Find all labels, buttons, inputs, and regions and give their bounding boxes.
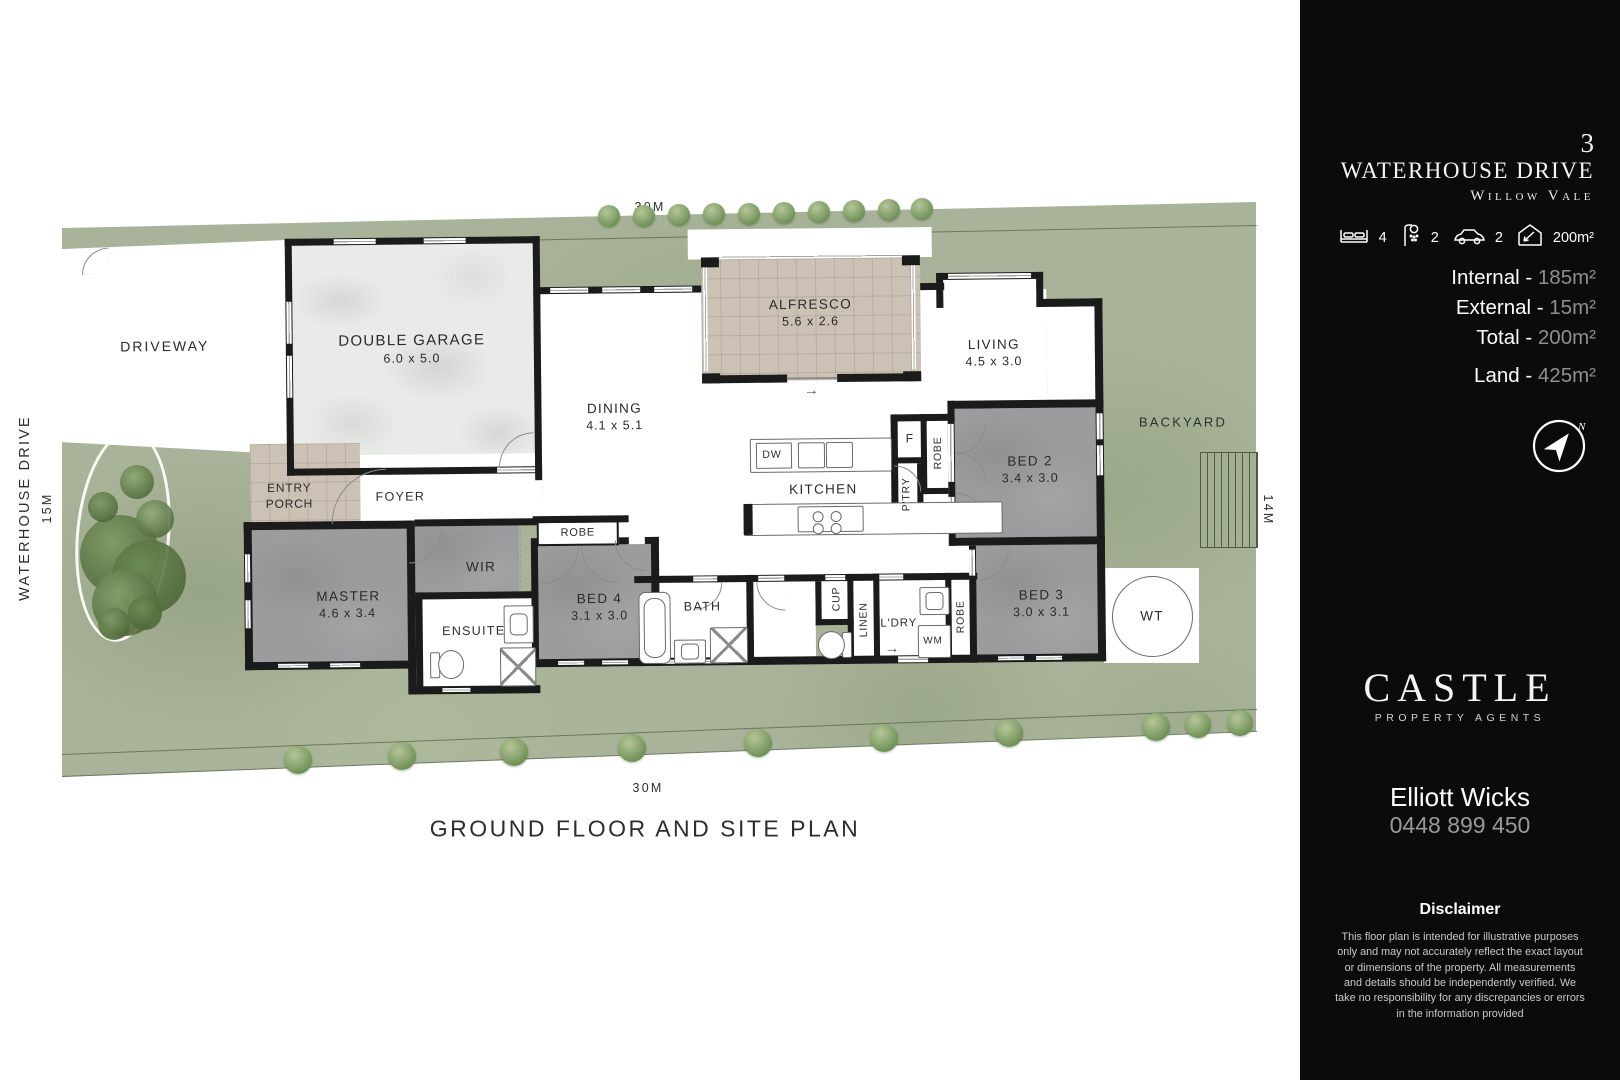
bush [744, 729, 772, 757]
window [287, 356, 292, 398]
stat-external-value: 15m² [1549, 296, 1596, 319]
bush [284, 746, 312, 774]
window [602, 660, 628, 664]
window [330, 663, 360, 667]
window [424, 238, 466, 243]
dining-label: DINING [587, 401, 642, 417]
ensuite-toilet [438, 650, 464, 679]
compass-icon: N [1531, 418, 1587, 474]
robe4-label: ROBE [561, 527, 595, 539]
cup-label: CUP [830, 587, 842, 612]
stat-total: Total - 200m² [1476, 326, 1596, 350]
window [1097, 413, 1103, 439]
wall-segment [701, 257, 719, 267]
disclaimer-title: Disclaimer [1300, 901, 1620, 919]
baths-count: 2 [1431, 230, 1439, 246]
window [558, 661, 584, 665]
brand-logo: CASTLE [1300, 664, 1620, 711]
bush [703, 203, 725, 225]
window [693, 576, 717, 581]
bush [618, 734, 646, 762]
wall-segment [533, 515, 629, 523]
wall-segment [645, 537, 659, 544]
kitchen-bench [743, 501, 1002, 536]
wall-segment [902, 255, 920, 265]
stat-internal-value: 185m² [1538, 266, 1596, 289]
wall-segment [873, 574, 880, 663]
wir-divider-line [520, 528, 522, 588]
laundry-basin [925, 592, 943, 610]
garage-dim: 6.0 x 5.0 [383, 351, 440, 366]
wall-segment [415, 518, 537, 526]
house: DRIVEWAY [0, 0, 1306, 1080]
window [602, 287, 640, 292]
alfresco-dim: 5.6 x 2.6 [782, 314, 839, 329]
bath-basin [681, 643, 699, 659]
wir-label: WIR [466, 559, 496, 574]
cooktop-burners [0, 0, 1295, 7]
bush [598, 205, 620, 227]
bench-end-post [743, 504, 752, 535]
window [879, 574, 903, 579]
laundry-door-arrow: → [884, 640, 899, 657]
alfresco-slider-arrow: → [804, 382, 819, 399]
robe3-label: ROBE [954, 600, 966, 633]
garage-label: DOUBLE GARAGE [338, 331, 485, 350]
bush [633, 205, 655, 227]
sink-right [826, 442, 853, 468]
entry-label-2: PORCH [266, 497, 313, 511]
bush [1227, 710, 1253, 736]
stat-land-value: 425m² [1538, 364, 1596, 387]
window [442, 688, 470, 692]
street-number: 3 [1581, 128, 1595, 159]
burner [813, 523, 824, 534]
ensuite-basin [510, 613, 528, 635]
bush [870, 724, 898, 752]
bush [911, 198, 933, 220]
feature-icons-row: 4 2 2 200m² [1338, 222, 1598, 253]
window [998, 656, 1024, 660]
beds-count: 4 [1379, 230, 1387, 246]
stat-total-label: Total - [1476, 326, 1532, 349]
kitchen-label: KITCHEN [789, 481, 858, 497]
shower-icon [1400, 222, 1422, 253]
fridge-label: F [906, 431, 914, 445]
bed2-label: BED 2 [1007, 453, 1053, 468]
wall-segment [837, 373, 921, 382]
window [825, 575, 845, 580]
cars-count: 2 [1495, 230, 1503, 246]
window [758, 576, 784, 581]
ldry-label: L'DRY [880, 617, 917, 629]
bed2-dim: 3.4 x 3.0 [1002, 471, 1059, 486]
window [969, 550, 975, 576]
disclaimer-body: This floor plan is intended for illustra… [1335, 930, 1585, 1022]
robe2-label: ROBE [932, 436, 944, 469]
stat-land-label: Land - [1474, 364, 1532, 387]
wall-segment [1036, 298, 1102, 307]
wall-segment [921, 488, 948, 494]
wall-segment [533, 236, 543, 480]
walls-layer [0, 0, 1295, 7]
bush [388, 742, 416, 770]
wall-segment [415, 591, 538, 599]
burner [813, 511, 824, 522]
compass-north-label: N [1577, 421, 1586, 433]
bush [878, 199, 900, 221]
window [1097, 445, 1103, 475]
bush [1142, 713, 1170, 741]
entry-label-1: ENTRY [267, 481, 312, 495]
sidebar: 3 WATERHOUSE DRIVE Willow Vale 4 2 [1300, 0, 1620, 1080]
burner [831, 511, 842, 522]
window [497, 467, 535, 472]
stat-internal: Internal - 185m² [1451, 266, 1596, 290]
wall-segment [702, 375, 787, 384]
alfresco-label: ALFRESCO [769, 296, 852, 312]
wc-toilet [818, 631, 845, 659]
area-value: 200m² [1553, 230, 1594, 246]
flyer-canvas: WATERHOUSE DRIVE 15M 30M 30M 14M BACKYAR… [0, 0, 1620, 1080]
house-area-icon [1516, 222, 1544, 253]
window [654, 287, 692, 292]
window [948, 273, 1031, 279]
street-title: WATERHOUSE DRIVE [1341, 158, 1594, 184]
stat-external-label: External - [1456, 296, 1544, 319]
bush [773, 202, 795, 224]
suburb-title: Willow Vale [1470, 188, 1594, 205]
bay-window-floor [943, 279, 1036, 308]
window [278, 664, 308, 668]
bed3-dim: 3.0 x 3.1 [1013, 605, 1070, 620]
wall-segment [947, 399, 1103, 409]
bush [668, 204, 690, 226]
burner [831, 523, 842, 534]
ensuite-shower [500, 647, 536, 686]
wall-segment [244, 522, 254, 670]
bush [808, 201, 830, 223]
window [245, 554, 250, 582]
bed4-dim: 3.1 x 3.0 [571, 608, 628, 623]
dining-dim: 4.1 x 5.1 [586, 418, 643, 433]
bush [500, 738, 528, 766]
bath-label: BATH [684, 599, 722, 613]
bathtub-inner [643, 598, 666, 658]
window [550, 288, 588, 293]
pantry-label: P'TRY [900, 477, 912, 511]
dw-label: DW [762, 449, 781, 461]
stat-internal-label: Internal - [1451, 266, 1532, 289]
sink-left [798, 442, 825, 468]
brand-tagline: PROPERTY AGENTS [1300, 712, 1620, 724]
ensuite-label: ENSUITE [442, 624, 505, 639]
linen-label: LINEN [858, 602, 870, 637]
living-label: LIVING [968, 337, 1020, 353]
car-icon [1452, 223, 1486, 252]
wall-segment [949, 536, 1105, 546]
bush [843, 200, 865, 222]
window [1036, 656, 1062, 660]
bed-icon [1338, 223, 1370, 252]
bed3-label: BED 3 [1019, 587, 1065, 602]
bush [1185, 712, 1211, 738]
window [286, 302, 291, 344]
window [948, 424, 955, 482]
wall-segment [415, 592, 423, 692]
agent-phone[interactable]: 0448 899 450 [1300, 812, 1620, 839]
window [334, 239, 376, 244]
stat-external: External - 15m² [1456, 296, 1596, 320]
bush [738, 203, 760, 225]
wall-segment [408, 685, 540, 694]
wm-label: WM [923, 635, 942, 646]
master-dim: 4.6 x 3.4 [319, 606, 376, 621]
foyer-label: FOYER [376, 489, 426, 504]
window [245, 600, 250, 628]
bush [995, 719, 1023, 747]
driveway-label: DRIVEWAY [120, 338, 209, 355]
bed4-label: BED 4 [577, 591, 623, 606]
stat-land: Land - 425m² [1474, 364, 1596, 388]
bath-shower [710, 627, 748, 663]
agent-name: Elliott Wicks [1300, 782, 1620, 813]
master-label: MASTER [316, 588, 380, 604]
living-dim: 4.5 x 3.0 [965, 354, 1022, 369]
stat-total-value: 200m² [1538, 326, 1596, 349]
